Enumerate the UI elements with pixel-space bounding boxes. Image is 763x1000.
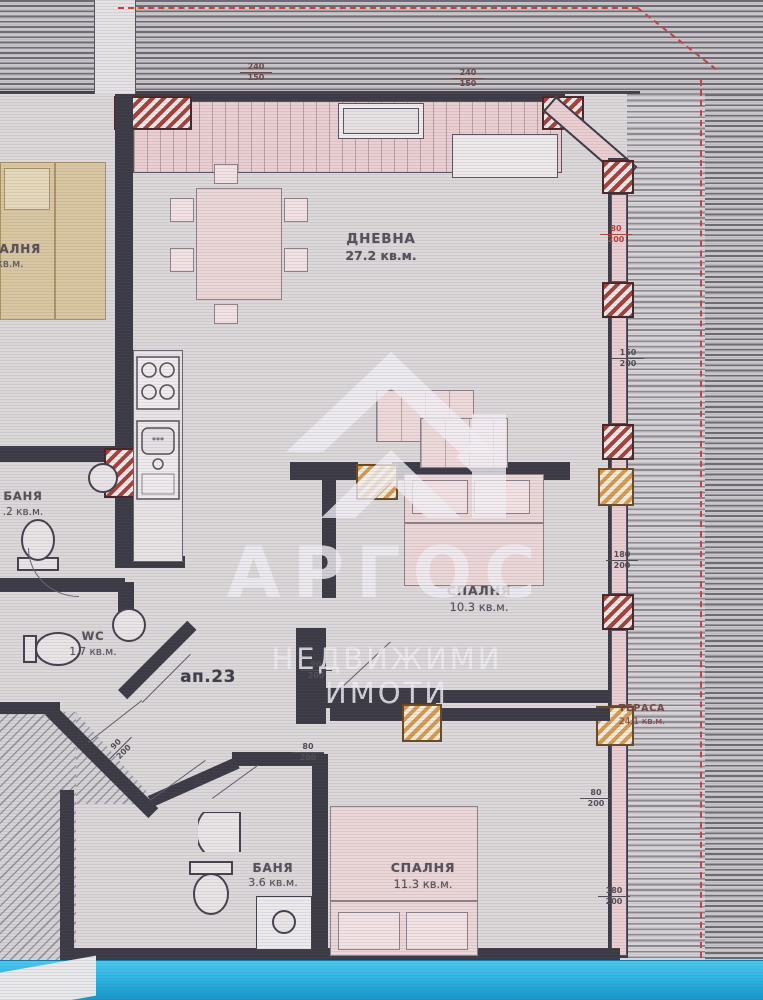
window-box-top <box>338 103 424 139</box>
bedroom-mid-name: СПАЛНЯ <box>424 583 534 600</box>
hatch-right-band <box>705 94 763 962</box>
chair <box>214 164 238 184</box>
column-right-3 <box>602 424 634 460</box>
dining-table <box>196 188 282 300</box>
neighbor-bedroom-area: кв.м. <box>0 257 56 271</box>
boundary-dash-right <box>700 80 702 958</box>
bedroom-bottom-name: СПАЛНЯ <box>368 860 478 877</box>
living-area: 27.2 кв.м. <box>326 248 436 265</box>
kitchen-sink-icon <box>136 420 180 500</box>
floor-plan: *** ДНЕВНА 27.2 кв.м. СПАЛНЯ 10.3 <box>0 0 763 1000</box>
bedroom-mid-area: 10.3 кв.м. <box>424 600 534 616</box>
window-right-5 <box>611 744 627 956</box>
bedroom-bottom-area: 11.3 кв.м. <box>368 877 478 893</box>
room-label-terrace: ТЕРАСА 24.1 кв.м. <box>606 703 678 728</box>
wall-entry-h <box>0 702 60 714</box>
boundary-dash-top <box>118 7 638 9</box>
room-label-bedroom-mid: СПАЛНЯ 10.3 кв.м. <box>424 583 534 615</box>
dim-marker-5: 90200 <box>300 660 332 680</box>
terrace-door-1 <box>598 468 634 506</box>
wall-bath-right <box>312 754 328 956</box>
window-right-4 <box>611 630 627 706</box>
door-leaf-bedroom-mid <box>336 642 391 693</box>
door-leaf-entry-1 <box>88 700 142 743</box>
column-right-2 <box>602 282 634 318</box>
dim-marker-8: 180200 <box>598 886 630 906</box>
bed-mid-pillow-right <box>474 480 530 514</box>
neighbor-bath-area: .2 кв.м. <box>0 505 58 519</box>
terrace-area: 24.1 кв.м. <box>606 716 678 728</box>
chair <box>170 248 194 272</box>
wall-bedroom-mid-left <box>322 478 336 598</box>
apartment-number: ап.23 <box>170 666 246 689</box>
room-label-bath-bottom: БАНЯ 3.6 кв.м. <box>230 860 316 891</box>
dim-marker-6: 80200 <box>292 742 324 762</box>
neighbor-bed-pillow <box>4 168 50 210</box>
wc-name: WC <box>58 629 128 645</box>
wall-bedroom-mid-bottom <box>436 690 610 703</box>
room-label-wc: WC 1.7 кв.м. <box>58 629 128 659</box>
bedroom-mid-door <box>356 464 398 500</box>
neighbor-bedroom-name: СПАЛНЯ <box>0 241 56 257</box>
room-label-neighbor-bedroom: СПАЛНЯ кв.м. <box>0 241 56 271</box>
washing-machine-drum <box>272 910 296 934</box>
window-box-corner <box>452 134 558 178</box>
kitchen-marks: *** <box>138 436 178 447</box>
room-label-neighbor-bath: БАНЯ .2 кв.м. <box>0 489 58 519</box>
dim-marker-2: 80200 <box>600 224 632 244</box>
bed-bottom-line <box>330 900 478 902</box>
bath-sink <box>198 812 246 852</box>
column-right-4 <box>602 594 634 630</box>
bed-bottom-pillow-right <box>406 912 468 950</box>
bath-bottom-area: 3.6 кв.м. <box>230 876 316 891</box>
hall-door <box>402 704 442 742</box>
wardrobe-mid-2 <box>420 418 508 468</box>
bottom-blue-strip <box>0 960 763 1000</box>
stove-icon <box>136 356 180 410</box>
room-label-living: ДНЕВНА 27.2 кв.м. <box>326 230 436 265</box>
wc-area: 1.7 кв.м. <box>58 645 128 659</box>
chair <box>284 198 308 222</box>
dim-marker-0: 240150 <box>240 62 272 82</box>
room-label-bedroom-bottom: СПАЛНЯ 11.3 кв.м. <box>368 860 478 892</box>
living-name: ДНЕВНА <box>326 230 436 248</box>
terrace-decking <box>627 94 705 962</box>
neighbor-bath-name: БАНЯ <box>0 489 58 505</box>
dim-marker-7: 80200 <box>580 788 612 808</box>
door-letter: д <box>188 774 208 789</box>
bath-toilet <box>186 860 236 918</box>
dim-marker-4: 180200 <box>606 550 638 570</box>
wall-hall-bottom <box>330 708 610 721</box>
wall-entry-v <box>60 790 74 960</box>
chair <box>170 198 194 222</box>
dim-marker-1: 240150 <box>452 68 484 88</box>
dim-marker-3: 150200 <box>612 348 644 368</box>
window-right-2 <box>611 316 627 424</box>
chair <box>284 248 308 272</box>
chair <box>214 304 238 324</box>
pillar-gap <box>94 0 136 94</box>
bed-bottom-pillow-left <box>338 912 400 950</box>
bed-mid-line <box>404 522 544 524</box>
neighbor-sink <box>88 463 118 493</box>
bed-mid-pillow-left <box>412 480 468 514</box>
terrace-name: ТЕРАСА <box>606 703 678 716</box>
bath-bottom-name: БАНЯ <box>230 860 316 876</box>
column-right-1 <box>602 160 634 194</box>
